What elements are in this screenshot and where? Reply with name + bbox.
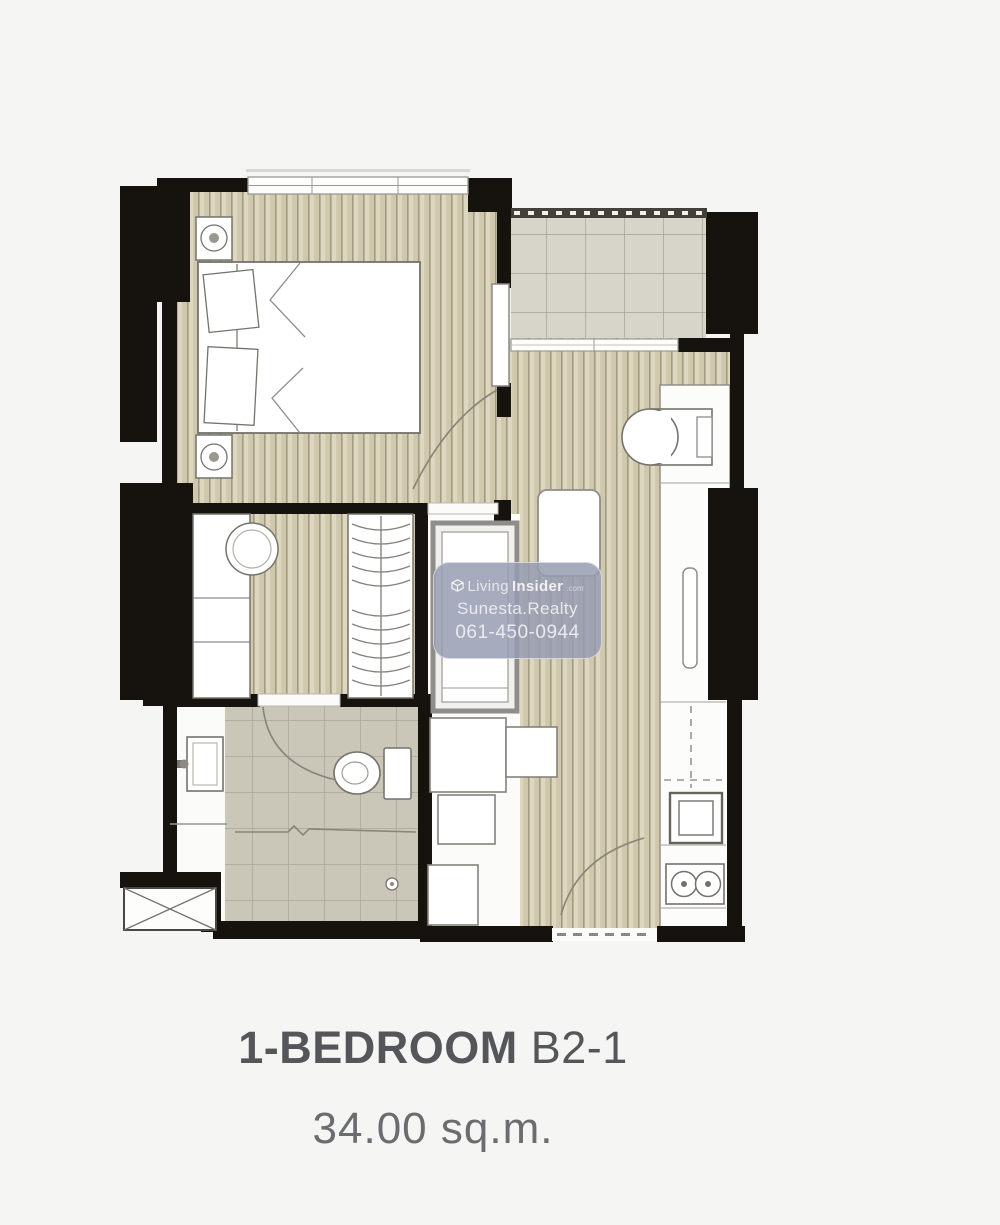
livinginsider-logo-icon bbox=[451, 579, 464, 592]
bed-icon bbox=[198, 262, 420, 433]
brand-suffix: .com bbox=[566, 581, 583, 596]
shower-drain-icon bbox=[386, 878, 398, 890]
oven-icon bbox=[670, 793, 722, 843]
watermark-agent: Sunesta.Realty bbox=[457, 599, 578, 619]
water-heater-icon bbox=[506, 727, 557, 777]
ac-ledge-icon bbox=[124, 888, 216, 930]
bedroom-door-leaf bbox=[492, 284, 509, 386]
nightstand-lamp-icon bbox=[196, 217, 232, 260]
washer-icon bbox=[430, 718, 506, 792]
wardrobe-icon bbox=[348, 514, 413, 698]
utility-box-icon bbox=[438, 795, 495, 844]
bathroom-door-threshold bbox=[258, 694, 340, 706]
unit-area: 34.00 sq.m. bbox=[313, 1104, 554, 1154]
nightstand-lamp-icon bbox=[196, 435, 232, 478]
unit-code: B2-1 bbox=[531, 1022, 628, 1073]
unit-type-bold: 1-BEDROOM bbox=[238, 1022, 518, 1073]
building-edge-line bbox=[246, 169, 470, 172]
balcony-sliding-door bbox=[511, 339, 678, 351]
kitchen-sink-icon bbox=[622, 409, 712, 465]
entry-door-threshold bbox=[552, 928, 657, 941]
watermark: LivingInsider.com Sunesta.Realty 061-450… bbox=[433, 562, 602, 659]
fridge-handle-icon bbox=[683, 568, 697, 668]
unit-type-title: 1-BEDROOM B2-1 bbox=[238, 1022, 628, 1074]
brand-light: Living bbox=[467, 579, 509, 594]
watermark-phone: 061-450-0944 bbox=[455, 622, 579, 644]
balcony-floor bbox=[511, 218, 706, 338]
shoe-cabinet-icon bbox=[428, 865, 478, 925]
brand-bold: Insider bbox=[512, 579, 563, 594]
bathroom-floor bbox=[225, 703, 418, 923]
stove-icon bbox=[666, 864, 724, 904]
bedroom-window bbox=[248, 177, 468, 194]
balcony-railing bbox=[511, 208, 707, 218]
watermark-brand: LivingInsider.com bbox=[451, 578, 583, 596]
bedroom-door-threshold bbox=[428, 503, 498, 514]
